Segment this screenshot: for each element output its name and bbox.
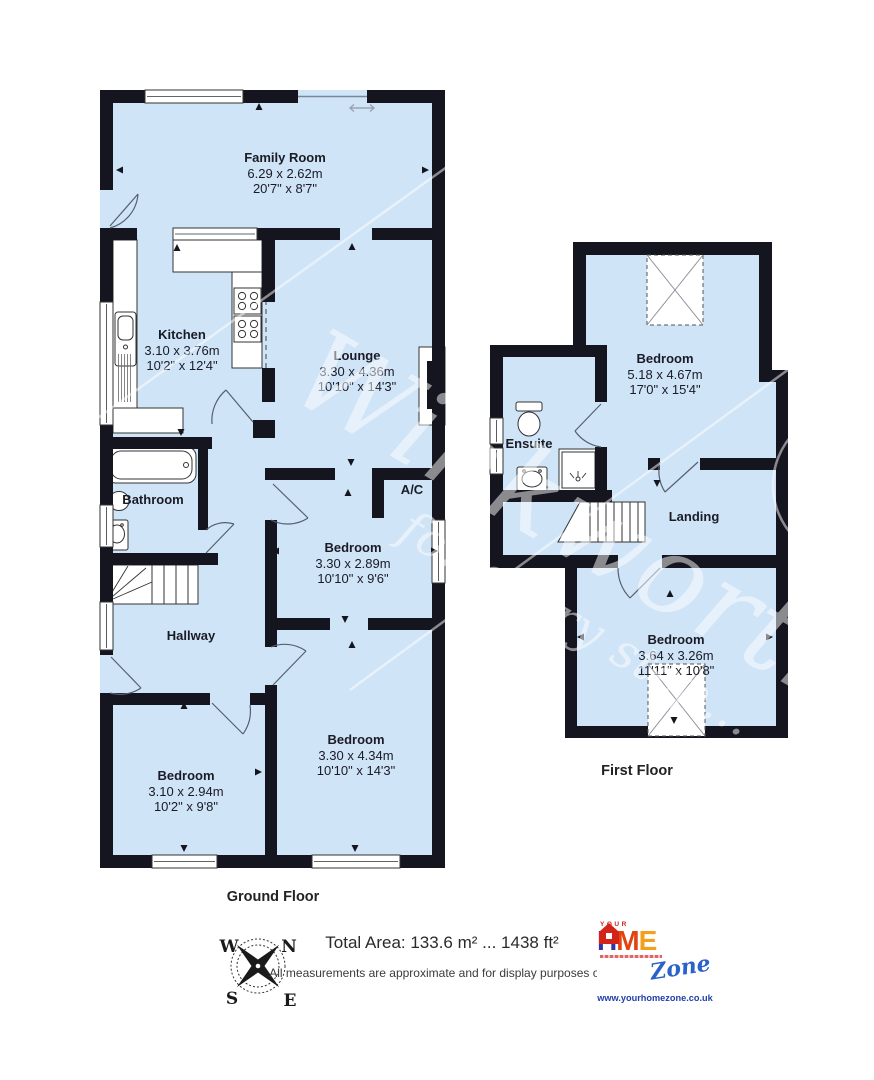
floorplan-drawing: W N S E [0,0,874,1080]
homezone-logo: YOUR H M E Zone www.yourhomezone.co.uk [597,921,713,1005]
room-label-ac: A/C [401,482,423,498]
room-label-bedroom-first-top: Bedroom 5.18 x 4.67m 17'0" x 15'4" [627,351,702,398]
room-label-family-room: Family Room 6.29 x 2.62m 20'7" x 8'7" [244,150,326,197]
room-label-lounge: Lounge 3.30 x 4.36m 10'10" x 14'3" [318,348,397,395]
house-icon [598,921,620,945]
room-label-ensuite: Ensuite [506,436,553,452]
total-area-text: Total Area: 133.6 m² ... 1438 ft² [325,933,558,953]
compass-south: S [226,989,238,1009]
room-label-bathroom: Bathroom [122,492,183,508]
room-label-hallway: Hallway [167,628,215,644]
room-label-landing: Landing [669,509,720,525]
compass-east: E [284,991,297,1011]
room-label-bedroom-bottom-left: Bedroom 3.10 x 2.94m 10'2" x 9'8" [148,768,223,815]
room-label-bedroom-bottom-right: Bedroom 3.30 x 4.34m 10'10" x 14'3" [317,732,396,779]
bathtub-icon [107,447,196,483]
toilet-icon [516,402,542,436]
logo-url: www.yourhomezone.co.uk [597,993,713,1003]
sink-icon [517,467,547,491]
compass-north: N [281,937,297,957]
room-label-bedroom-middle: Bedroom 3.30 x 2.89m 10'10" x 9'6" [315,540,390,587]
shower-icon [559,449,598,491]
first-floor-title: First Floor [601,763,673,779]
stairs-icon [104,565,198,604]
logo-home-text: H M E [597,928,713,954]
compass-west: W [218,937,239,957]
disclaimer-text: All measurements are approximate and for… [269,966,615,980]
logo-letter-e: E [639,928,657,954]
room-label-kitchen: Kitchen 3.10 x 3.76m 10'2" x 12'4" [144,327,219,374]
room-label-bedroom-first-bottom: Bedroom 3.64 x 3.26m 11'11" x 10'8" [638,632,715,679]
floorplan-canvas: W N S E Family Room 6.29 x 2.62m 20'7" x… [0,0,874,1080]
ground-floor-title: Ground Floor [227,889,320,905]
